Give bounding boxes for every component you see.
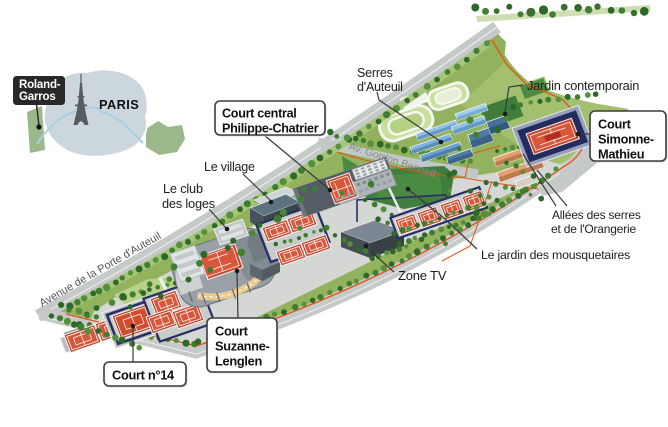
svg-text:Court n°14: Court n°14 [112, 368, 175, 383]
svg-text:Allées des serres: Allées des serres [552, 208, 641, 222]
svg-text:Garros: Garros [19, 91, 56, 103]
svg-text:Simonne-: Simonne- [598, 132, 654, 147]
svg-text:et de l'Orangerie: et de l'Orangerie [551, 222, 636, 236]
svg-text:Court central: Court central [222, 106, 296, 120]
svg-text:Serres: Serres [357, 66, 393, 80]
svg-text:des loges: des loges [162, 196, 215, 211]
svg-text:Le jardin des mousquetaires: Le jardin des mousquetaires [481, 248, 630, 262]
svg-text:Mathieu: Mathieu [598, 147, 644, 162]
svg-text:Zone TV: Zone TV [398, 268, 447, 283]
svg-text:Philippe-Chatrier: Philippe-Chatrier [222, 121, 319, 135]
svg-text:Court: Court [215, 324, 249, 339]
svg-text:Suzanne-: Suzanne- [215, 339, 270, 354]
svg-text:Court: Court [598, 117, 632, 132]
svg-text:Jardin contemporain: Jardin contemporain [527, 78, 639, 93]
svg-text:Le club: Le club [163, 181, 203, 196]
svg-text:PARIS: PARIS [99, 97, 139, 112]
svg-text:Lenglen: Lenglen [215, 354, 262, 369]
svg-text:Le village: Le village [204, 160, 255, 174]
svg-text:d'Auteuil: d'Auteuil [357, 80, 403, 94]
svg-text:Roland-: Roland- [19, 79, 61, 91]
